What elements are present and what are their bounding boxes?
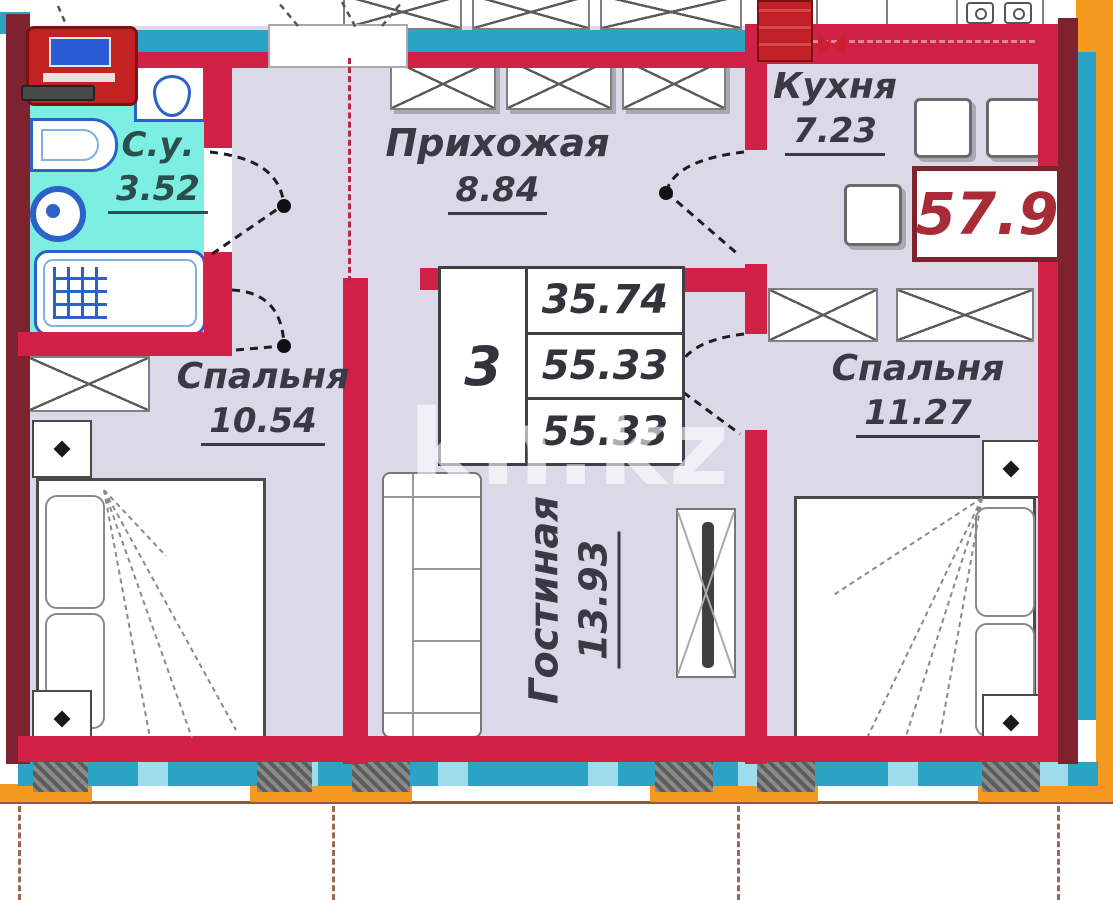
stove-burner-icon	[1004, 2, 1032, 24]
total-area-box: 57.9	[912, 166, 1062, 262]
bedroom-right-closet-icon	[896, 288, 1034, 342]
kitchen-appliance-icon	[844, 184, 902, 246]
bottom-window-band	[18, 762, 1098, 786]
nightstand-icon	[982, 440, 1040, 498]
bathroom-right-wall	[204, 60, 232, 148]
right-window-band	[1078, 52, 1096, 720]
bathroom-bottom-wall	[18, 332, 232, 356]
room-name: Спальня	[818, 348, 1018, 389]
right-outside-corner	[1076, 0, 1096, 52]
nightstand-icon	[32, 420, 92, 478]
room-name: Гостиная	[521, 496, 567, 704]
ground-line	[0, 801, 1113, 804]
right-outside-band	[1096, 0, 1113, 802]
room-area: 3.52	[108, 169, 208, 214]
grid-line	[1057, 806, 1060, 900]
nightstand-knob-icon	[54, 711, 71, 728]
stove-burner-icon	[966, 2, 994, 24]
kitchen-label: Кухня 7.23	[760, 66, 910, 156]
bathtub-jets-icon	[53, 267, 107, 319]
bathroom-label: С.у. 3.52	[108, 126, 208, 214]
kitchen-hall-wall	[745, 264, 767, 292]
room-area: 10.54	[201, 401, 325, 446]
summary-area-row: 35.74	[528, 269, 682, 335]
kitchen-unit-icon	[757, 0, 813, 62]
room-area: 8.84	[448, 170, 548, 215]
washing-machine-icon	[30, 186, 86, 242]
bedroom-right-wall	[745, 292, 767, 334]
tv-stand-icon	[676, 508, 736, 678]
neighbor-closet-icon	[600, 0, 742, 30]
room-area: 11.27	[856, 393, 980, 438]
washing-machine-door-icon	[46, 204, 60, 218]
kitchen-appliance-icon	[986, 98, 1042, 158]
bathtub-icon	[34, 250, 206, 336]
bedroom-left-label: Спальня 10.54	[158, 356, 368, 446]
hall-wall-stub	[683, 268, 745, 292]
living-room-label: Гостиная 13.93	[491, 498, 651, 703]
total-area-value: 57.9	[915, 180, 1058, 248]
room-name: Прихожая	[380, 122, 615, 166]
logo-plaque	[26, 26, 138, 106]
right-outer-wall	[1058, 18, 1078, 764]
bedroom-right-label: Спальня 11.27	[818, 348, 1018, 438]
kitchen-appliance-icon	[914, 98, 972, 158]
grid-line	[332, 806, 335, 900]
logo-screen	[49, 37, 111, 67]
grid-line	[737, 806, 740, 900]
toilet-bowl-icon	[153, 75, 191, 117]
nightstand-knob-icon	[1003, 715, 1020, 732]
sink-basin-icon	[41, 129, 99, 161]
entrance-door-opening	[268, 24, 408, 68]
bathroom-door-opening	[204, 148, 232, 252]
bedroom-left-closet-icon	[28, 356, 150, 412]
left-outer-wall	[6, 14, 30, 764]
neighbor-closet-icon	[472, 0, 590, 30]
nightstand-knob-icon	[1003, 461, 1020, 478]
toilet-icon	[134, 64, 206, 122]
neighbor-counter-icon	[816, 0, 888, 26]
hallway-label: Прихожая 8.84	[380, 122, 615, 215]
bedroom-right-closet-icon	[768, 288, 878, 342]
pillow-icon	[975, 507, 1035, 617]
floor-plan: 57.9 3 35.74 55.33 55.33	[0, 0, 1113, 900]
watermark: kn.kz	[390, 378, 750, 518]
tv-icon	[702, 522, 714, 668]
nightstand-knob-icon	[54, 441, 71, 458]
neighbor-stove-icon	[956, 0, 1044, 26]
bedroom-left-living-wall	[343, 278, 368, 764]
hallway-dashed-boundary	[348, 58, 351, 282]
room-name: Кухня	[760, 66, 910, 107]
bottom-wall	[18, 736, 1058, 762]
sofa-cushion-icon	[414, 570, 480, 642]
sofa-armrest-icon	[384, 712, 480, 736]
room-name: Спальня	[158, 356, 368, 397]
sink-icon	[30, 118, 118, 172]
room-area: 13.93	[571, 532, 620, 668]
grid-line	[18, 806, 21, 900]
logo-tray	[21, 85, 95, 101]
room-area: 7.23	[785, 111, 885, 156]
room-name: С.у.	[108, 126, 208, 165]
pillow-icon	[45, 495, 105, 609]
logo-bar	[43, 73, 115, 82]
right-inner-wall	[1038, 24, 1058, 762]
